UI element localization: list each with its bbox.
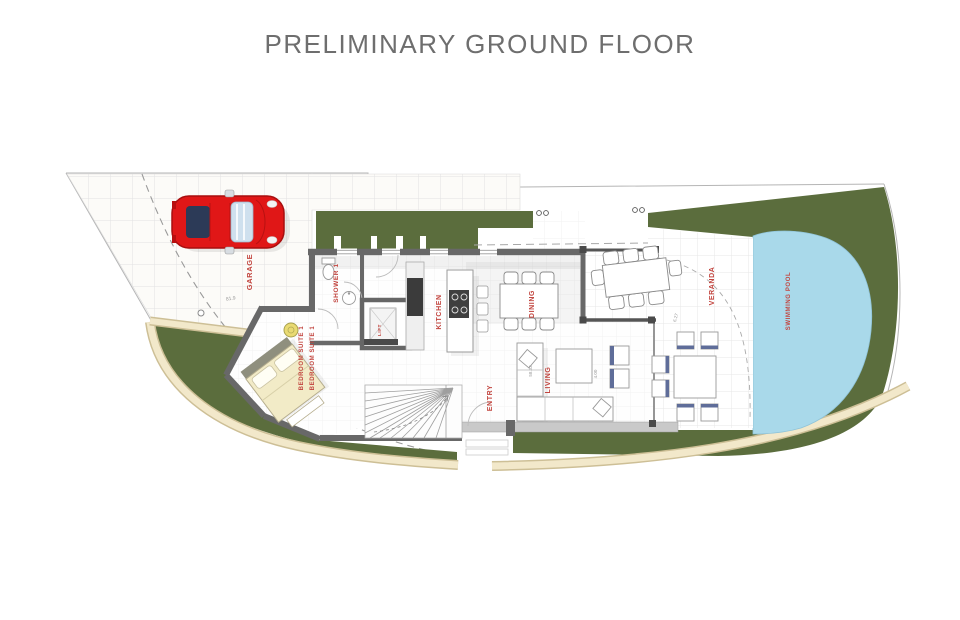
label-shower: SHOWER 1 <box>333 263 340 302</box>
dining-chair <box>504 318 518 330</box>
lounge-table <box>674 356 716 398</box>
dining-chair <box>540 318 554 330</box>
car <box>172 190 290 254</box>
window <box>430 249 448 256</box>
bar-stool <box>477 286 488 298</box>
label-swimming-pool: SWIMMING POOL <box>786 272 792 330</box>
car-headlight <box>267 201 277 208</box>
label-veranda: VERANDA <box>709 267 716 306</box>
car-taillight <box>172 201 176 209</box>
outdoor-chair <box>642 246 658 261</box>
car-taillight <box>172 235 176 243</box>
label-lift: LIFT <box>377 324 382 336</box>
window <box>480 249 497 256</box>
dining-chair <box>540 272 554 284</box>
outdoor-chair <box>668 260 682 276</box>
label-bedroom-suite-b: BEDROOM SUITE 1 <box>310 326 316 391</box>
car-headlight <box>267 237 277 244</box>
terrace-edge <box>452 422 678 432</box>
lift <box>362 300 410 348</box>
label-kitchen: KITCHEN <box>436 294 443 329</box>
dim-living-width: 4.00 <box>593 369 598 378</box>
dining-chair <box>522 272 536 284</box>
dining-chair <box>504 272 518 284</box>
label-bedroom-suite-a: BEDROOM SUITE 1 <box>299 326 305 391</box>
outdoor-chair <box>608 295 624 310</box>
kitchen-appliance <box>407 278 423 316</box>
window <box>337 249 357 256</box>
dining-chair <box>522 318 536 330</box>
outdoor-chair <box>623 248 639 263</box>
outdoor-chair <box>628 293 644 308</box>
car-mirror <box>225 247 234 254</box>
car-windshield <box>231 202 253 242</box>
plant-pot <box>284 323 298 337</box>
outdoor-chair <box>603 251 619 266</box>
label-living: LIVING <box>545 367 552 394</box>
coffee-table <box>556 349 592 383</box>
label-garage: GARAGE <box>245 254 254 291</box>
outdoor-chair <box>648 290 664 305</box>
bar-stool <box>477 303 488 315</box>
floor-plan-page: PRELIMINARY GROUND FLOOR <box>0 0 960 620</box>
lawn-top-band <box>316 211 533 236</box>
car-rear-window <box>186 206 210 238</box>
toilet-tank <box>322 258 335 264</box>
label-dining: DINING <box>529 290 536 318</box>
entry-steps <box>466 440 508 455</box>
car-mirror <box>225 190 234 197</box>
floor-plan-drawing: PRELIMINARY GROUND FLOOR <box>0 0 960 620</box>
label-entry: ENTRY <box>487 385 494 411</box>
staircase <box>365 385 462 438</box>
dim-sofa-length: 58.32 <box>528 365 533 377</box>
window <box>382 249 400 256</box>
page-title: PRELIMINARY GROUND FLOOR <box>265 29 696 59</box>
basin-tap <box>348 292 350 294</box>
bar-stool <box>477 320 488 332</box>
upper-terrace-tiles <box>533 211 585 252</box>
outdoor-chair <box>591 269 605 285</box>
